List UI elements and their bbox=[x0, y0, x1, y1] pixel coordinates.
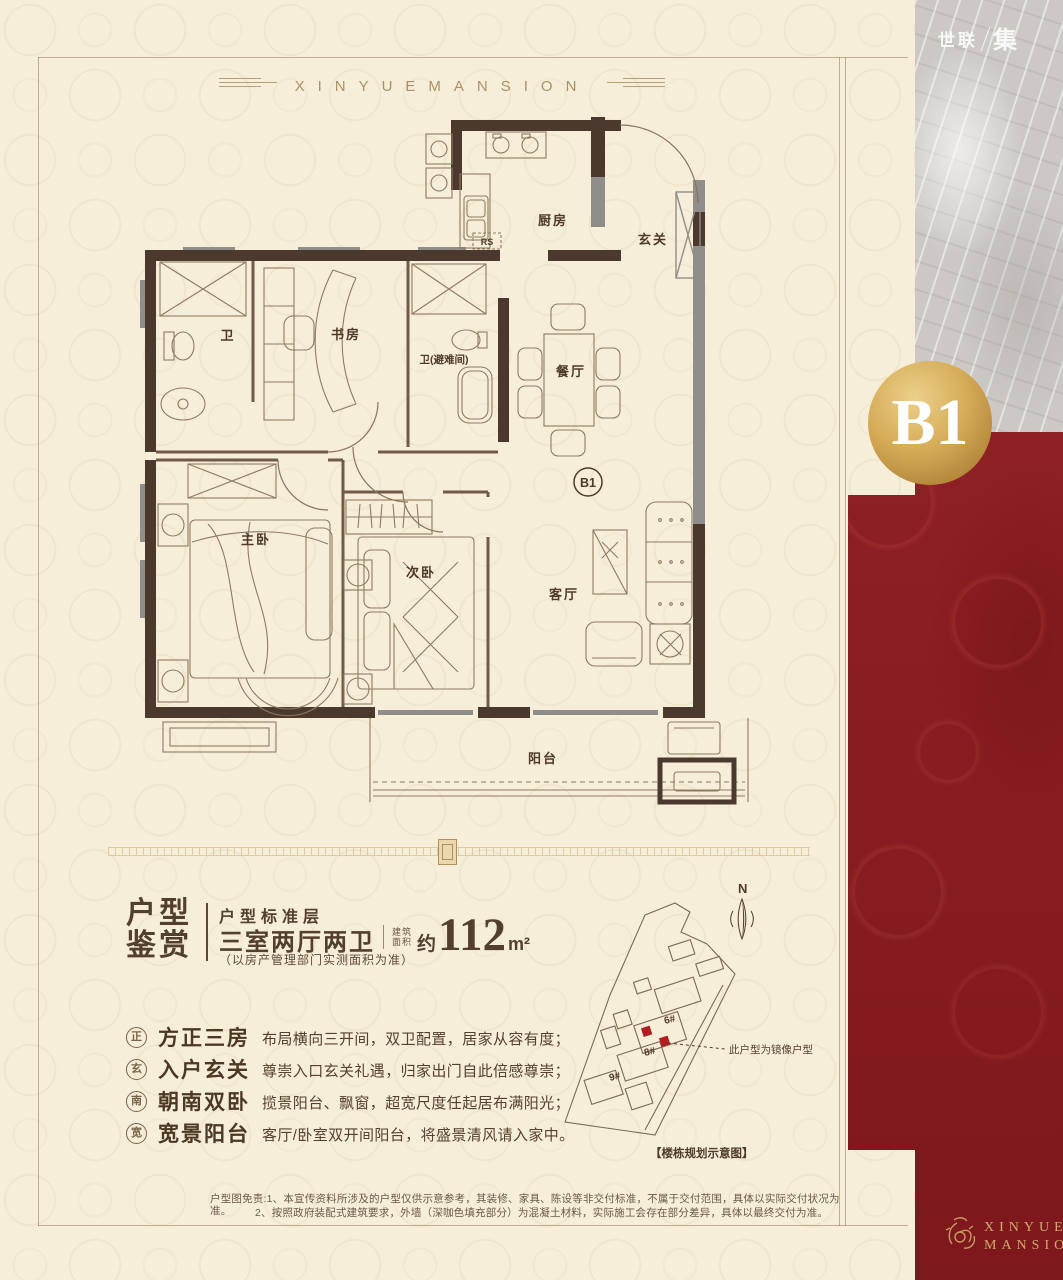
building-label-6: 6# bbox=[663, 1013, 677, 1026]
feature-seal-icon: 玄 bbox=[126, 1059, 147, 1080]
area-approx: 约 bbox=[417, 929, 436, 956]
room-label-bath2: 卫(避难间) bbox=[420, 353, 469, 366]
room-label-master: 主卧 bbox=[241, 532, 271, 547]
feature-title: 宽景阳台 bbox=[158, 1118, 250, 1148]
fridge-label: RS bbox=[481, 237, 494, 247]
developer-logo: 世联集 bbox=[938, 20, 1048, 55]
section-title-line2: 鉴赏 bbox=[126, 930, 206, 962]
callout-text: 此户型为镜像户型 bbox=[729, 1043, 813, 1056]
feature-title: 方正三房 bbox=[158, 1022, 250, 1052]
title-divider bbox=[206, 903, 208, 961]
area-note: （以房产管理部门实测面积为准） bbox=[219, 951, 414, 968]
logo-slash bbox=[981, 27, 991, 52]
unit-badge: B1 bbox=[868, 361, 992, 485]
area-value: 112 bbox=[438, 916, 506, 956]
footer-logo-line2: MANSION bbox=[984, 1238, 1063, 1253]
siteplan-caption: 【楼栋规划示意图】 bbox=[650, 1146, 754, 1160]
feature-title: 朝南双卧 bbox=[158, 1086, 250, 1116]
unit-circle-label: B1 bbox=[580, 476, 596, 490]
frame-top-line bbox=[38, 57, 908, 58]
building-label-9: 9# bbox=[608, 1070, 622, 1083]
floorplan-dark-walls bbox=[145, 117, 705, 718]
divider-seal-ornament bbox=[438, 839, 457, 865]
area-unit: m² bbox=[508, 934, 530, 955]
brand-ornament-icon bbox=[940, 1212, 980, 1256]
room-label-dining: 餐厅 bbox=[555, 364, 586, 379]
room-label-kitchen: 厨房 bbox=[538, 213, 568, 228]
section-title-line1: 户型 bbox=[126, 898, 206, 930]
feature-seal-icon: 正 bbox=[126, 1027, 147, 1048]
room-label-bath1: 卫 bbox=[220, 328, 235, 343]
feature-desc: 尊崇入口玄关礼遇，归家出门自此倍感尊崇； bbox=[262, 1057, 570, 1081]
banner-ornament-right bbox=[607, 78, 665, 87]
banner-ornament-left bbox=[219, 78, 277, 87]
frame-left-line bbox=[38, 57, 39, 1226]
highlighted-units bbox=[641, 1026, 670, 1047]
area-label-bottom: 面积 bbox=[392, 937, 412, 947]
room-label-balcony: 阳台 bbox=[528, 751, 558, 766]
area-label: 建筑 面积 bbox=[392, 927, 412, 947]
developer-logo-right: 集 bbox=[993, 27, 1017, 54]
room-label-study: 书房 bbox=[331, 327, 361, 342]
developer-logo-left: 世联 bbox=[938, 31, 978, 50]
feature-desc: 布局横向三开间，双卫配置，居家从容有度； bbox=[262, 1025, 570, 1049]
footer-logo-line1: XINYUE bbox=[984, 1220, 1063, 1235]
siteplan-svg: N 6# 8# 9# 此户型为镜像户型 【楼栋规划示意图】 bbox=[555, 875, 860, 1165]
spec-divider bbox=[383, 925, 384, 949]
room-label-foyer: 玄关 bbox=[638, 232, 668, 247]
feature-seal-icon: 宽 bbox=[126, 1123, 147, 1144]
top-banner: XINYUEMANSION bbox=[38, 78, 846, 95]
compass-icon bbox=[731, 899, 754, 939]
feature-title: 入户玄关 bbox=[158, 1054, 250, 1084]
frame-bottom-line bbox=[38, 1225, 908, 1226]
section-title: 户型 鉴赏 bbox=[126, 898, 206, 962]
feature-desc: 客厅/卧室双开间阳台，将盛景清风请入家中。 bbox=[262, 1121, 575, 1145]
compass-north-label: N bbox=[738, 881, 747, 896]
floorplan-svg: 厨房 玄关 卫 书房 卫(避难间) 餐厅 主卧 次卧 客厅 阳台 B1 RS bbox=[88, 112, 828, 817]
area-label-top: 建筑 bbox=[392, 927, 412, 937]
callout-leader-line bbox=[668, 1043, 725, 1049]
site-buildings bbox=[584, 940, 723, 1110]
feature-seal-icon: 南 bbox=[126, 1091, 147, 1112]
floorplan-partitions bbox=[156, 261, 498, 707]
feature-desc: 揽景阳台、飘窗，超宽尺度任起居布满阳光； bbox=[262, 1089, 570, 1113]
banner-text: XINYUEMANSION bbox=[295, 78, 590, 95]
divider-band bbox=[108, 847, 810, 856]
room-label-second: 次卧 bbox=[406, 565, 436, 580]
room-label-living: 客厅 bbox=[549, 587, 579, 602]
disclaimer-line2: 2、按照政府装配式建筑要求，外墙（深咖色填充部分）为混凝土材料，实际施工会存在部… bbox=[255, 1207, 855, 1219]
building-label-8: 8# bbox=[643, 1045, 657, 1058]
